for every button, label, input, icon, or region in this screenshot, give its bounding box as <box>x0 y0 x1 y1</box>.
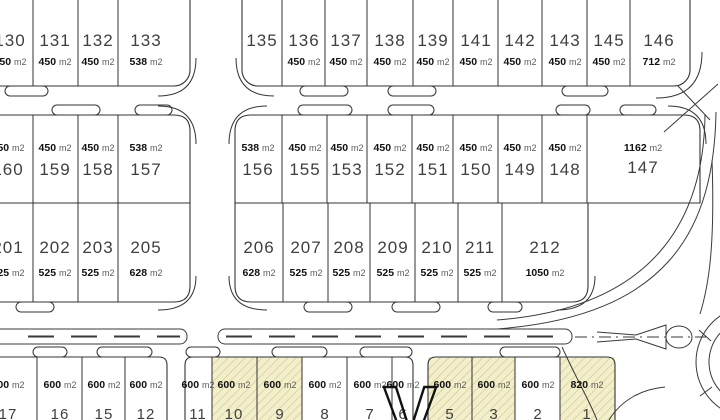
plot-area: 538 m2 <box>130 56 163 68</box>
plot-number: 7 <box>365 406 374 420</box>
plot-number: 130 <box>0 31 26 50</box>
plot-number: 211 <box>465 238 495 257</box>
plot-number: 5 <box>445 406 454 420</box>
plot-area: 600 m2 <box>478 379 511 391</box>
plot-number: 142 <box>504 31 535 50</box>
plot-area: 600 m2 <box>130 379 163 391</box>
plot-area: 525 m2 <box>464 267 497 279</box>
plot-area: 525 m2 <box>377 267 410 279</box>
plot-area: 450 m2 <box>460 142 493 154</box>
plot-area: 600 m2 <box>434 379 467 391</box>
plot-area: 600 m2 <box>354 379 387 391</box>
plot-number: 16 <box>51 406 70 420</box>
plot-number: 141 <box>460 31 491 50</box>
plot-number: 143 <box>549 31 580 50</box>
plot-area: 525 m2 <box>290 267 323 279</box>
plot-area: 450 m2 <box>288 56 321 68</box>
plot-area: 712 m2 <box>643 56 676 68</box>
plot-number: 8 <box>320 406 329 420</box>
plot-number: 158 <box>82 160 113 179</box>
plot-area: 450 m2 <box>417 142 450 154</box>
masterplan-canvas: 130 131 132 133 135 136 137 138 139 141 … <box>0 0 720 420</box>
masterplan-drawing: 130 131 132 133 135 136 137 138 139 141 … <box>0 0 720 420</box>
plot-number: 156 <box>242 160 273 179</box>
plot-area: 600 m2 <box>218 379 251 391</box>
plot-number: 151 <box>417 160 448 179</box>
plot-number: 208 <box>333 238 364 257</box>
row2-labels: 450 m2 450 m2 450 m2 538 m2 538 m2 450 m… <box>0 142 662 179</box>
row3-labels: 201 202 203 205 206 207 208 209 210 211 … <box>0 238 564 279</box>
plot-area: 450 m2 <box>374 142 407 154</box>
plot-area: 450 m2 <box>504 56 537 68</box>
plot-area: 628 m2 <box>130 267 163 279</box>
plot-area: 525 m2 <box>333 267 366 279</box>
plot-number: 15 <box>95 406 114 420</box>
plot-area: 820 m2 <box>571 379 604 391</box>
plot-area: 450 m2 <box>289 142 322 154</box>
plot-number: 159 <box>39 160 70 179</box>
approach-edge <box>609 387 665 420</box>
plot-area: 525 m2 <box>0 267 24 279</box>
plot-area: 450 m2 <box>417 56 450 68</box>
plot-area: 525 m2 <box>82 267 115 279</box>
plot-area: 450 m2 <box>504 142 537 154</box>
plot-area: 450 m2 <box>330 56 363 68</box>
plot-area: 628 m2 <box>243 267 276 279</box>
plot-number: 10 <box>225 406 244 420</box>
plot-area: 450 m2 <box>374 56 407 68</box>
plot-area: 450 m2 <box>549 56 582 68</box>
plot-number: 203 <box>82 238 113 257</box>
plot-number: 160 <box>0 160 24 179</box>
plot-number: 137 <box>330 31 361 50</box>
plot-area: 450 m2 <box>549 142 582 154</box>
plot-number: 3 <box>489 406 498 420</box>
plot-number: 212 <box>529 238 560 257</box>
plot-number: 155 <box>289 160 320 179</box>
plot-number: 205 <box>130 238 161 257</box>
plot-number: 150 <box>460 160 491 179</box>
road-median <box>0 329 572 344</box>
plot-number: 157 <box>130 160 161 179</box>
plot-area: 600 m2 <box>309 379 342 391</box>
plot-number: 210 <box>421 238 452 257</box>
plot-number: 146 <box>643 31 674 50</box>
row1-labels: 130 131 132 133 135 136 137 138 139 141 … <box>0 31 675 68</box>
plot-area: 1050 m2 <box>526 267 565 279</box>
plot-number: 149 <box>504 160 535 179</box>
plot-number: 11 <box>189 406 207 420</box>
roundabout-outer <box>696 306 720 418</box>
plot-area: 1162 m2 <box>624 142 662 154</box>
plot-number: 1 <box>582 406 591 420</box>
plot-number: 206 <box>243 238 274 257</box>
plot-area: 450 m2 <box>460 56 493 68</box>
plot-number: 152 <box>374 160 405 179</box>
plot-area: 450 m2 <box>39 56 72 68</box>
plot-number: 17 <box>0 406 17 420</box>
plot-area: 600 m2 <box>264 379 297 391</box>
plot-area: 450 m2 <box>82 56 115 68</box>
plot-number: 131 <box>39 31 70 50</box>
plot-area: 600 m2 <box>44 379 77 391</box>
plot-area: 600 m2 <box>522 379 555 391</box>
plot-area: 538 m2 <box>130 142 163 154</box>
plot-number: 153 <box>331 160 362 179</box>
plot-number: 139 <box>417 31 448 50</box>
junction-line <box>664 84 718 132</box>
plot-number: 138 <box>374 31 405 50</box>
plot-number: 136 <box>288 31 319 50</box>
plot-area: 450 m2 <box>82 142 115 154</box>
roundabout-inner <box>709 319 720 405</box>
watermark-v: V <box>383 370 436 420</box>
plot-area: 450 m2 <box>39 142 72 154</box>
plot-area: 538 m2 <box>242 142 275 154</box>
plot-area: 450 m2 <box>0 56 26 68</box>
plot-area: 600 m2 <box>0 379 24 391</box>
plot-number: 9 <box>275 406 284 420</box>
plot-area: 450 m2 <box>0 142 24 154</box>
plot-number: 148 <box>549 160 580 179</box>
plot-area: 525 m2 <box>39 267 72 279</box>
plot-area: 525 m2 <box>421 267 454 279</box>
plot-number: 209 <box>377 238 408 257</box>
plot-number: 132 <box>82 31 113 50</box>
plot-number: 135 <box>246 31 277 50</box>
plot-area: 450 m2 <box>593 56 626 68</box>
plot-number: 2 <box>533 406 542 420</box>
plot-number: 207 <box>290 238 321 257</box>
block-row2-left <box>0 115 190 203</box>
driveway-tabs <box>5 86 656 357</box>
plot-number: 12 <box>137 406 156 420</box>
plot-number: 201 <box>0 238 24 257</box>
plot-number: 133 <box>130 31 161 50</box>
plot-area: 450 m2 <box>331 142 364 154</box>
plot-area: 600 m2 <box>88 379 121 391</box>
plot-number: 147 <box>627 158 658 177</box>
plot-number: 145 <box>593 31 624 50</box>
road-to-roundabout <box>700 160 713 314</box>
plot-number: 202 <box>39 238 70 257</box>
plot-area: 600 m2 <box>182 379 215 391</box>
